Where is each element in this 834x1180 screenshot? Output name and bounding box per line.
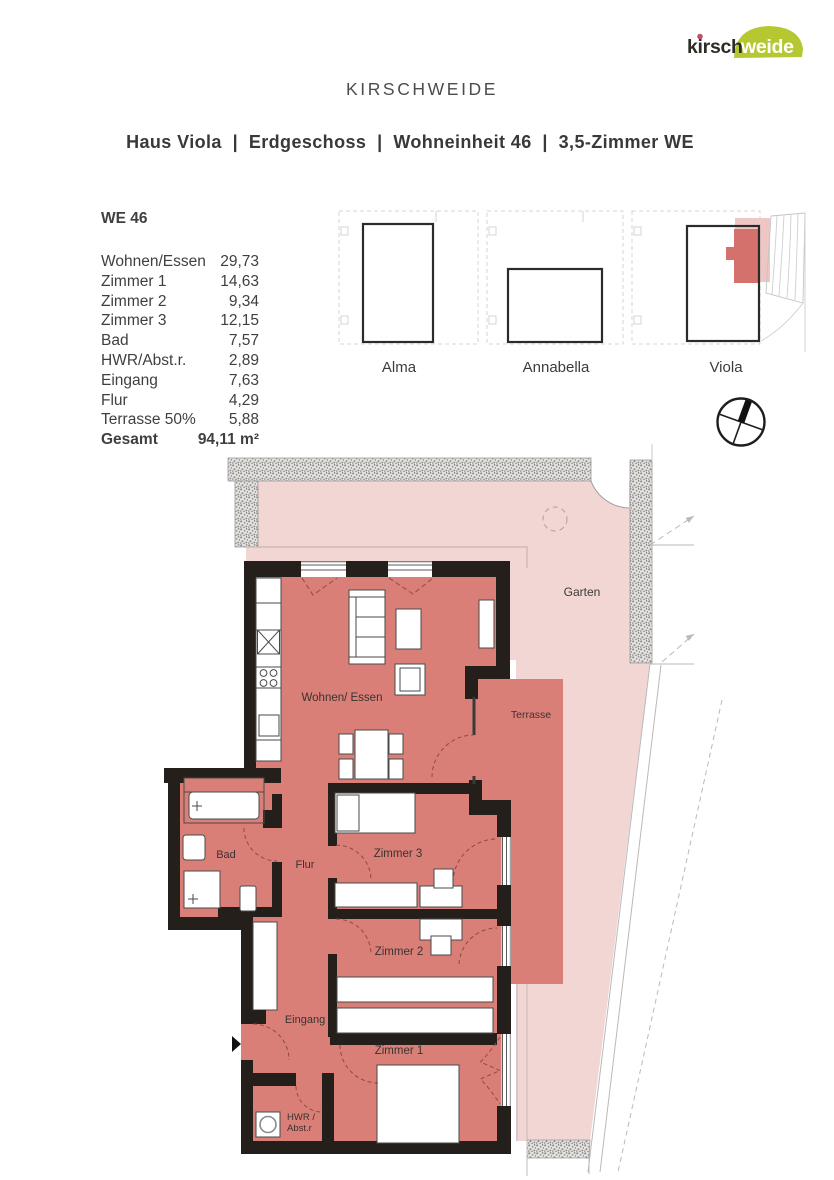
svg-text:Zimmer 1: Zimmer 1 [375, 1045, 424, 1057]
svg-text:HWR /: HWR / [287, 1112, 315, 1123]
svg-text:Alma: Alma [382, 359, 417, 376]
svg-text:weide: weide [740, 36, 794, 58]
svg-text:Garten: Garten [564, 585, 601, 599]
svg-text:Zimmer 3: Zimmer 3 [374, 848, 423, 860]
svg-text:Wohnen/ Essen: Wohnen/ Essen [302, 692, 383, 704]
svg-text:Terrasse: Terrasse [511, 709, 551, 721]
svg-text:Eingang: Eingang [285, 1014, 325, 1026]
svg-text:Viola: Viola [709, 359, 743, 376]
svg-text:kirsch: kirsch [687, 36, 743, 58]
svg-text:Flur: Flur [296, 859, 315, 871]
svg-text:Abst.r: Abst.r [287, 1123, 312, 1134]
svg-text:Annabella: Annabella [523, 359, 590, 376]
svg-text:Zimmer 2: Zimmer 2 [375, 946, 424, 958]
svg-text:Bad: Bad [216, 849, 236, 861]
